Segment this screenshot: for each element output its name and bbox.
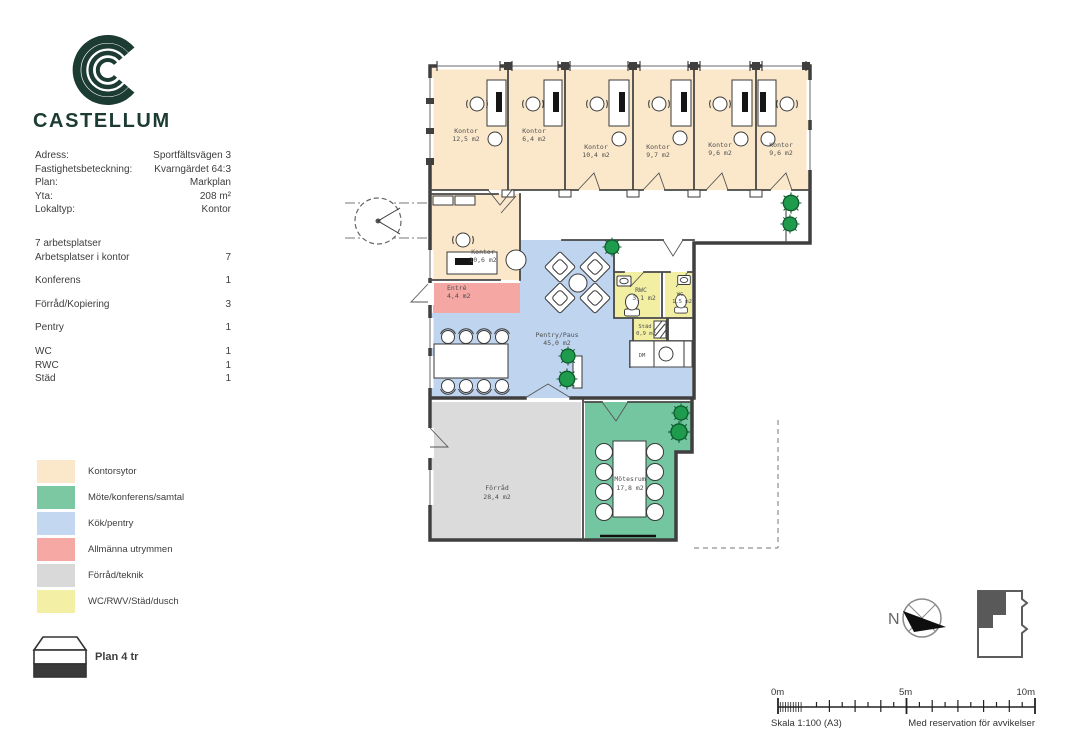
legend-item: Allmänna utrymmen: [37, 538, 184, 561]
info-value: 1: [225, 359, 231, 373]
chair-icon: [647, 504, 664, 521]
window: [762, 61, 806, 71]
stool-icon: [612, 132, 626, 146]
floor-plan: Kontor 12,5 m2 Kontor 6,4 m2 Kontor 10,4…: [335, 20, 865, 605]
monitor-icon: [742, 92, 748, 112]
stool-icon: [734, 132, 748, 146]
dining-table-icon: [434, 344, 508, 378]
room-label: RWC: [635, 286, 647, 294]
chair-icon: [647, 444, 664, 461]
room-area: 6,4 m2: [522, 135, 546, 143]
room-area: 10,4 m2: [582, 151, 609, 159]
legend-label: WC/RWV/Städ/dusch: [88, 596, 179, 607]
legend-swatch-mote: [37, 486, 75, 509]
chair-icon: [647, 464, 664, 481]
info-label: 7 arbetsplatser: [35, 237, 101, 251]
window: [437, 61, 500, 71]
room-area: 9,7 m2: [646, 151, 670, 159]
info-row: Yta:208 m²: [35, 190, 231, 204]
legend-item: WC/RWV/Städ/dusch: [37, 590, 184, 613]
dining-chair-icon: [495, 380, 510, 395]
info-row: Arbetsplatser i kontor7: [35, 251, 231, 265]
scale-tick-5: 5m: [899, 687, 912, 698]
window: [427, 104, 434, 128]
sink-icon: [659, 347, 673, 361]
info-label: Arbetsplatser i kontor: [35, 251, 130, 265]
room-label: WC: [677, 292, 684, 298]
stool-icon: [488, 132, 502, 146]
plant-icon: [603, 238, 622, 257]
info-label: Städ: [35, 372, 56, 386]
info-row: Plan:Markplan: [35, 176, 231, 190]
plant-icon: [557, 369, 578, 390]
window: [807, 130, 814, 170]
spiral-stair-icon: [345, 198, 428, 244]
info-value: 7: [225, 251, 231, 265]
info-row: Konferens1: [35, 274, 231, 288]
info-row: Lokaltyp:Kontor: [35, 203, 231, 217]
room-label: Kontor: [584, 143, 608, 151]
plant-icon: [781, 193, 802, 214]
dining-chair-icon: [459, 329, 474, 344]
dining-chair-icon: [495, 329, 510, 344]
info-row: Pentry1: [35, 321, 231, 335]
info-value: 1: [225, 274, 231, 288]
legend-item: Kontorsytor: [37, 460, 184, 483]
info-label: Yta:: [35, 190, 53, 204]
info-label: RWC: [35, 359, 59, 373]
info-row: Fastighetsbeteckning:Kvarngärdet 64:3: [35, 163, 231, 177]
room-label: Pentry/Paus: [535, 331, 578, 339]
legend-swatch-kontorsytor: [37, 460, 75, 483]
info-row: Förråd/Kopiering3: [35, 298, 231, 312]
info-row: RWC1: [35, 359, 231, 373]
washbasin-icon: [678, 276, 691, 285]
plan-footer: N 0m: [760, 575, 1060, 745]
info-label: Konferens: [35, 274, 81, 288]
stool-icon: [506, 250, 526, 270]
info-label: Adress:: [35, 149, 69, 163]
legend-label: Kontorsytor: [88, 466, 137, 477]
info-value: Markplan: [190, 176, 231, 190]
room-label: Mötesrum: [614, 475, 645, 483]
room-label: Förråd: [485, 483, 509, 492]
room-label: Kontor: [708, 141, 732, 149]
legend-swatch-kok: [37, 512, 75, 535]
legend-label: Allmänna utrymmen: [88, 544, 172, 555]
room-area: 1,5 m2: [672, 299, 692, 305]
info-label: WC: [35, 345, 52, 359]
floor-level-icon: [31, 633, 89, 683]
plant-icon: [559, 347, 578, 366]
room-area: 9,6 m2: [708, 149, 732, 157]
cabinet-icon: [455, 196, 475, 205]
chair-icon: [596, 444, 613, 461]
dining-chair-icon: [441, 380, 456, 395]
room-area: 28,4 m2: [483, 493, 510, 501]
disclaimer-text: Med reservation för avvikelser: [908, 718, 1035, 729]
room-area: 3,1 m2: [632, 294, 656, 302]
legend-label: Möte/konferens/samtal: [88, 492, 184, 503]
legend-swatch-forrad: [37, 564, 75, 587]
room-label: Entré: [447, 284, 467, 292]
info-value: Kvarngärdet 64:3: [154, 163, 231, 177]
room-label: Kontor: [471, 248, 495, 256]
plant-icon: [668, 421, 690, 443]
info-row: Adress:Sportfältsvägen 3: [35, 149, 231, 163]
round-table-icon: [569, 274, 587, 292]
room-area: 45,0 m2: [543, 339, 570, 347]
window: [512, 61, 558, 71]
room-area: 17,8 m2: [616, 484, 643, 492]
info-value: 1: [225, 345, 231, 359]
room-area: 9,6 m2: [769, 149, 793, 157]
scale-tick-10: 10m: [1017, 687, 1036, 698]
window: [427, 134, 434, 158]
info-label: Plan:: [35, 176, 58, 190]
dining-chair-icon: [441, 329, 456, 344]
room-forrad: [432, 402, 581, 539]
room-label: Kontor: [769, 141, 793, 149]
monitor-icon: [760, 92, 766, 112]
info-label: Förråd/Kopiering: [35, 298, 109, 312]
logo-spiral-c: [77, 39, 132, 101]
info-label: Lokaltyp:: [35, 203, 75, 217]
info-value: 208 m²: [200, 190, 231, 204]
plant-icon: [781, 215, 800, 234]
dining-chair-icon: [477, 329, 492, 344]
info-value: 1: [225, 372, 231, 386]
info-row: 7 arbetsplatser: [35, 237, 231, 251]
window: [700, 61, 750, 71]
key-plan-icon: [978, 591, 1027, 657]
room-area: 12,5 m2: [452, 135, 479, 143]
legend: Kontorsytor Möte/konferens/samtal Kök/pe…: [37, 460, 184, 616]
brand-wordmark: CASTELLUM: [33, 110, 171, 133]
scale-text: Skala 1:100 (A3): [771, 718, 842, 729]
window: [427, 250, 434, 278]
info-row: WC1: [35, 345, 231, 359]
info-label: Fastighetsbeteckning:: [35, 163, 132, 177]
window: [807, 80, 814, 120]
chair-icon: [647, 484, 664, 501]
chair-icon: [596, 504, 613, 521]
dining-chair-icon: [477, 380, 492, 395]
corridor-pilasters: [502, 190, 762, 197]
legend-item: Kök/pentry: [37, 512, 184, 535]
window: [427, 318, 434, 348]
info-label: Pentry: [35, 321, 64, 335]
room-label: Städ: [638, 324, 651, 330]
monitor-icon: [496, 92, 502, 112]
scale-bar: [778, 698, 1035, 714]
legend-item: Förråd/teknik: [37, 564, 184, 587]
stool-icon: [673, 131, 687, 145]
window: [427, 470, 434, 505]
info-row: Städ1: [35, 372, 231, 386]
washbasin-icon: [617, 276, 631, 286]
room-area: 4,4 m2: [447, 292, 471, 300]
window: [427, 78, 434, 98]
info-value: 1: [225, 321, 231, 335]
legend-label: Förråd/teknik: [88, 570, 143, 581]
legend-swatch-allmanna: [37, 538, 75, 561]
scale-tick-0: 0m: [771, 687, 784, 698]
north-label: N: [888, 611, 900, 628]
legend-swatch-wc: [37, 590, 75, 613]
chair-icon: [596, 464, 613, 481]
cabinet-icon: [433, 196, 453, 205]
room-label: Kontor: [646, 143, 670, 151]
info-value: 3: [225, 298, 231, 312]
north-arrow-icon: N: [888, 599, 946, 637]
adjacent-boundary-dashed: [694, 420, 778, 548]
monitor-icon: [553, 92, 559, 112]
castellum-logo: [30, 18, 230, 114]
property-info: Adress:Sportfältsvägen 3 Fastighetsbetec…: [35, 149, 231, 386]
floor-level-label: Plan 4 tr: [95, 651, 138, 663]
room-area: 10,6 m2: [469, 256, 496, 264]
room-label: Kontor: [522, 127, 546, 135]
door-opening: [426, 428, 434, 458]
room-label: Kontor: [454, 127, 478, 135]
room-area: 0,9 m2: [636, 331, 656, 337]
monitor-icon: [681, 92, 687, 112]
window: [427, 356, 434, 388]
monitor-icon: [619, 92, 625, 112]
legend-item: Möte/konferens/samtal: [37, 486, 184, 509]
window: [570, 61, 628, 71]
info-value: Kontor: [202, 203, 231, 217]
appliance-label: DM: [639, 353, 646, 359]
plant-icon: [672, 404, 691, 423]
chair-icon: [596, 484, 613, 501]
legend-label: Kök/pentry: [88, 518, 133, 529]
window: [640, 61, 688, 71]
info-value: Sportfältsvägen 3: [153, 149, 231, 163]
dining-chair-icon: [459, 380, 474, 395]
